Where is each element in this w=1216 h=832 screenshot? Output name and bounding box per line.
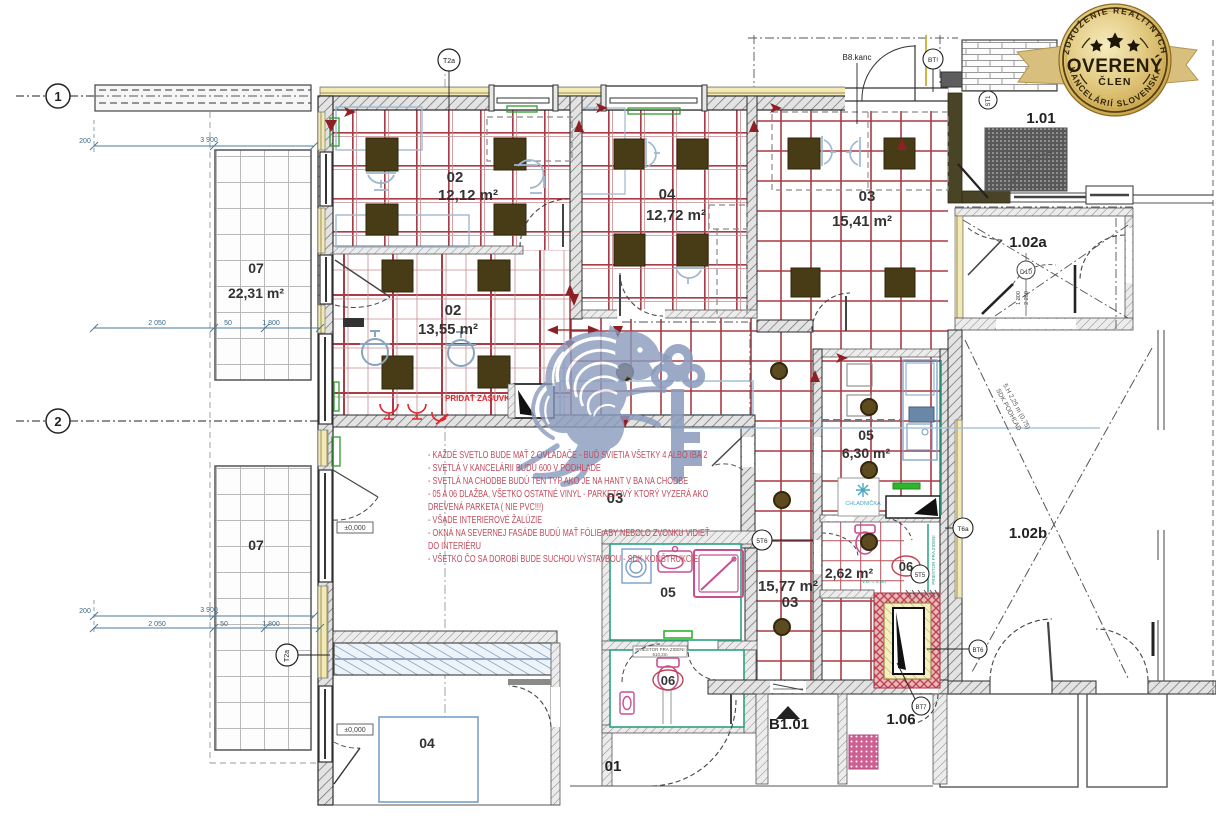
svg-text:B8.kanc: B8.kanc bbox=[843, 53, 872, 62]
svg-text:±0,000: ±0,000 bbox=[344, 525, 365, 532]
svg-text:- SVETLÁ V KANCELÁRII BUDÚ 600: - SVETLÁ V KANCELÁRII BUDÚ 600 V PODHLAD… bbox=[428, 462, 601, 473]
svg-text:06: 06 bbox=[661, 673, 675, 688]
svg-text:02: 02 bbox=[447, 169, 464, 186]
svg-text:15,77 m²: 15,77 m² bbox=[758, 578, 818, 595]
svg-text:T2a: T2a bbox=[284, 650, 291, 662]
svg-text:02: 02 bbox=[445, 302, 462, 319]
svg-text:15,41 m²: 15,41 m² bbox=[832, 213, 892, 230]
svg-text:610,2m: 610,2m bbox=[652, 652, 667, 657]
svg-text:CHLADNIČKA: CHLADNIČKA bbox=[845, 500, 881, 507]
svg-text:03: 03 bbox=[782, 594, 799, 611]
svg-text:1 300: 1 300 bbox=[1016, 291, 1022, 305]
svg-text:12,72 m²: 12,72 m² bbox=[646, 207, 706, 224]
svg-text:1.06: 1.06 bbox=[886, 711, 915, 728]
svg-text:B1.01: B1.01 bbox=[769, 716, 809, 733]
svg-text:1.01: 1.01 bbox=[1026, 110, 1055, 127]
svg-text:- KAŽDÉ SVETLO BUDE MAŤ 2 OVLÁ: - KAŽDÉ SVETLO BUDE MAŤ 2 OVLÁDAČE - BUĎ… bbox=[428, 449, 708, 460]
svg-text:1 800: 1 800 bbox=[262, 621, 280, 628]
svg-text:3 900: 3 900 bbox=[200, 607, 218, 614]
svg-text:ST1: ST1 bbox=[986, 95, 992, 107]
svg-text:D10: D10 bbox=[1020, 269, 1032, 276]
svg-text:12,12 m²: 12,12 m² bbox=[438, 187, 498, 204]
svg-text:04: 04 bbox=[419, 735, 435, 751]
svg-text:ČLEN: ČLEN bbox=[1098, 75, 1131, 88]
svg-text:2 050: 2 050 bbox=[148, 621, 166, 628]
svg-text:07: 07 bbox=[248, 537, 264, 553]
svg-text:01: 01 bbox=[605, 758, 622, 775]
svg-text:BT7: BT7 bbox=[915, 705, 927, 711]
svg-text:- OKNÁ NA SEVERNEJ FASÁDE BUDÚ: - OKNÁ NA SEVERNEJ FASÁDE BUDÚ MAŤ FÓLIE… bbox=[428, 527, 710, 538]
svg-text:±0,000: ±0,000 bbox=[344, 727, 365, 734]
svg-text:1: 1 bbox=[54, 89, 61, 104]
svg-text:6,30 m²: 6,30 m² bbox=[842, 445, 891, 461]
svg-text:2,62 m²: 2,62 m² bbox=[825, 565, 874, 581]
svg-text:200: 200 bbox=[79, 138, 91, 145]
svg-text:OVERENÝ: OVERENÝ bbox=[1067, 55, 1163, 77]
svg-text:PRIESTOR PRA ZIDENI: PRIESTOR PRA ZIDENI bbox=[931, 535, 936, 584]
svg-text:1 800: 1 800 bbox=[262, 320, 280, 327]
svg-text:50: 50 bbox=[224, 320, 232, 327]
svg-text:05: 05 bbox=[660, 584, 676, 600]
svg-text:5T6: 5T6 bbox=[756, 538, 768, 545]
svg-text:BT!: BT! bbox=[928, 57, 938, 64]
svg-text:DO INTERIÉRU: DO INTERIÉRU bbox=[428, 540, 481, 551]
svg-text:13,55 m²: 13,55 m² bbox=[418, 321, 478, 338]
svg-text:- SVETLÁ NA CHODBE BUDÚ TEN TY: - SVETLÁ NA CHODBE BUDÚ TEN TYP AKO JE N… bbox=[428, 475, 688, 486]
svg-text:T2a: T2a bbox=[443, 58, 455, 65]
svg-text:07: 07 bbox=[248, 260, 264, 276]
svg-text:04: 04 bbox=[659, 186, 676, 203]
svg-text:DREVENÁ PARKETA ( NIE PVC!!!): DREVENÁ PARKETA ( NIE PVC!!!) bbox=[428, 501, 544, 512]
svg-text:05: 05 bbox=[858, 427, 874, 443]
svg-text:50: 50 bbox=[220, 621, 228, 628]
svg-text:BT6: BT6 bbox=[972, 648, 984, 654]
svg-text:2: 2 bbox=[54, 414, 61, 429]
svg-text:- VŠADE INTERIEROVÉ ŽALÚZIE: - VŠADE INTERIEROVÉ ŽALÚZIE bbox=[428, 514, 542, 525]
svg-text:T6a: T6a bbox=[957, 526, 969, 533]
svg-text:22,31 m²: 22,31 m² bbox=[228, 285, 284, 301]
svg-text:PRIDAŤ ZÁSUVKY: PRIDAŤ ZÁSUVKY bbox=[445, 394, 516, 403]
svg-text:2 050: 2 050 bbox=[148, 320, 166, 327]
svg-text:1.02a: 1.02a bbox=[1009, 234, 1047, 251]
svg-text:- 05 A 06 DLAŽBA, VŠETKO OSTAT: - 05 A 06 DLAŽBA, VŠETKO OSTATNÉ VINYL -… bbox=[428, 488, 708, 499]
svg-text:- VŠETKO ČO SA DOROBÍ BUDE SUC: - VŠETKO ČO SA DOROBÍ BUDE SUCHOU VÝSTAV… bbox=[428, 553, 698, 564]
svg-text:5T5: 5T5 bbox=[915, 573, 926, 579]
svg-text:200: 200 bbox=[79, 608, 91, 615]
svg-text:1.02b: 1.02b bbox=[1009, 525, 1047, 542]
svg-text:03: 03 bbox=[859, 188, 876, 205]
svg-text:3 900: 3 900 bbox=[200, 137, 218, 144]
